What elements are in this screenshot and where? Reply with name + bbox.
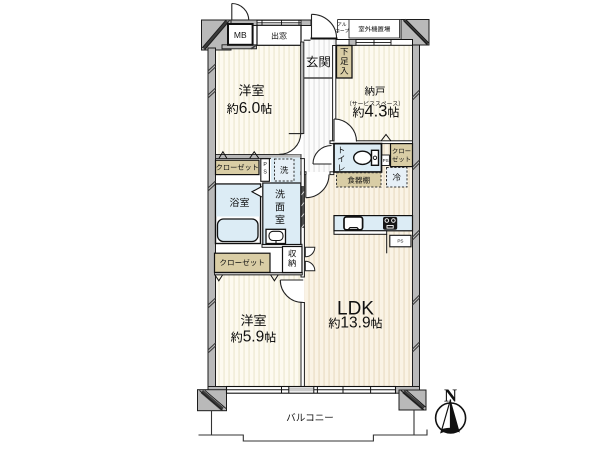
svg-text:S: S (263, 169, 267, 175)
svg-text:N: N (444, 386, 457, 406)
svg-text:5.9: 5.9 (243, 329, 265, 346)
svg-text:6.0: 6.0 (239, 100, 261, 117)
svg-text:PS: PS (397, 239, 403, 244)
svg-text:13.9: 13.9 (340, 315, 370, 332)
svg-text:MB: MB (234, 30, 247, 40)
svg-text:P: P (263, 162, 267, 168)
svg-text:PS: PS (383, 158, 389, 163)
svg-text:4.3: 4.3 (365, 103, 388, 121)
